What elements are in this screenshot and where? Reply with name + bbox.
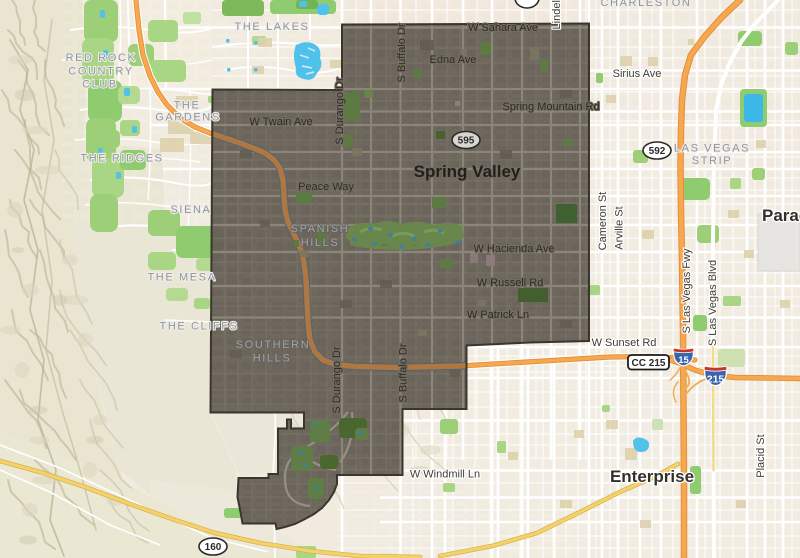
svg-text:THE RIDGES: THE RIDGES	[80, 153, 163, 165]
svg-text:THE: THE	[174, 100, 201, 112]
svg-text:Enterprise: Enterprise	[610, 467, 694, 486]
svg-text:CC 215: CC 215	[632, 358, 666, 369]
svg-text:W Hacienda Ave: W Hacienda Ave	[473, 243, 554, 255]
svg-text:S Durango Dr: S Durango Dr	[331, 346, 343, 414]
svg-text:SPANISH: SPANISH	[291, 223, 350, 235]
svg-text:S Buffalo Dr: S Buffalo Dr	[398, 343, 410, 402]
svg-text:S Durango Dr: S Durango Dr	[334, 77, 346, 145]
svg-text:W Windmill Ln: W Windmill Ln	[410, 469, 480, 481]
svg-text:595: 595	[458, 136, 475, 147]
svg-text:160: 160	[205, 542, 222, 553]
svg-text:Paradise: Paradise	[762, 206, 800, 225]
svg-text:SOUTHERN: SOUTHERN	[236, 339, 311, 351]
svg-text:COUNTRY: COUNTRY	[68, 66, 133, 78]
svg-text:STRIP: STRIP	[692, 155, 732, 167]
svg-text:GARDENS: GARDENS	[155, 112, 221, 124]
svg-text:THE CLIFFS: THE CLIFFS	[160, 321, 239, 333]
svg-text:W Patrick Ln: W Patrick Ln	[467, 309, 529, 321]
svg-text:Spring Valley: Spring Valley	[414, 162, 521, 181]
svg-text:15: 15	[678, 355, 689, 366]
svg-text:W Sahara Ave: W Sahara Ave	[468, 22, 538, 34]
svg-text:Sirius Ave: Sirius Ave	[613, 68, 662, 80]
svg-text:CHARLESTON: CHARLESTON	[601, 0, 692, 9]
svg-text:W Sunset Rd: W Sunset Rd	[592, 337, 657, 349]
svg-text:592: 592	[649, 146, 666, 157]
svg-text:W Russell Rd: W Russell Rd	[477, 277, 544, 289]
svg-text:S Buffalo Dr: S Buffalo Dr	[396, 23, 408, 82]
svg-text:RED ROCK: RED ROCK	[66, 52, 137, 64]
svg-text:S Las Vegas Fwy: S Las Vegas Fwy	[681, 248, 693, 333]
svg-text:LAS VEGAS: LAS VEGAS	[674, 143, 750, 155]
svg-text:S Las Vegas Blvd: S Las Vegas Blvd	[707, 260, 719, 346]
svg-text:Lindell Rd: Lindell Rd	[551, 0, 563, 29]
svg-text:THE MESA: THE MESA	[147, 272, 216, 284]
svg-text:HILLS: HILLS	[253, 353, 292, 365]
svg-text:Peace Way: Peace Way	[298, 181, 354, 193]
svg-text:Spring Mountain Rd: Spring Mountain Rd	[502, 101, 599, 113]
svg-text:Edna Ave: Edna Ave	[430, 54, 477, 66]
svg-text:Placid St: Placid St	[755, 434, 767, 477]
svg-text:W Twain Ave: W Twain Ave	[249, 116, 312, 128]
svg-text:SIENA: SIENA	[170, 204, 211, 216]
svg-text:215: 215	[707, 373, 725, 385]
svg-text:Cameron St: Cameron St	[597, 192, 609, 251]
svg-text:CLUB: CLUB	[82, 79, 118, 91]
svg-text:HILLS: HILLS	[301, 237, 340, 249]
svg-text:THE LAKES: THE LAKES	[235, 21, 310, 33]
svg-text:Arville St: Arville St	[614, 206, 626, 249]
